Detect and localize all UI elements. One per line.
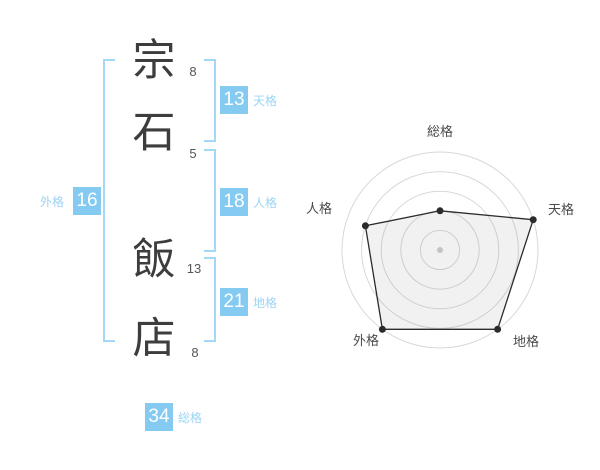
gaikaku-value-badge: 16 <box>73 187 101 215</box>
radar-axis-label-0: 総格 <box>427 124 453 139</box>
stroke-count-3: 13 <box>184 261 204 276</box>
chikaku-bracket <box>204 257 216 342</box>
name-char-1: 宗 <box>132 39 176 83</box>
name-char-2: 石 <box>132 111 176 155</box>
radar-data-polygon <box>365 211 533 329</box>
soukaku-value-badge: 34 <box>145 403 173 431</box>
tenkaku-bracket <box>204 59 216 142</box>
radar-vertex-1 <box>530 216 537 223</box>
radar-vertex-0 <box>437 207 444 214</box>
tenkaku-value-badge: 13 <box>220 86 248 114</box>
radar-axis-label-2: 地格 <box>513 334 539 349</box>
radar-center-dot <box>437 247 443 253</box>
jinkaku-value-badge: 18 <box>220 188 248 216</box>
gaikaku-bracket <box>103 59 115 342</box>
chikaku-label: 地格 <box>253 296 277 310</box>
gaikaku-label: 外格 <box>30 195 64 209</box>
radar-axis-label-1: 天格 <box>548 202 574 217</box>
soukaku-label: 総格 <box>178 411 202 425</box>
radar-vertex-2 <box>494 326 501 333</box>
fortune-radar-chart: 総格天格地格外格人格 <box>290 100 590 400</box>
tenkaku-label: 天格 <box>253 94 277 108</box>
stroke-count-2: 5 <box>183 146 203 161</box>
jinkaku-label: 人格 <box>253 196 277 210</box>
name-char-4: 店 <box>132 317 176 361</box>
name-fortune-result: 宗 石 飯 店 8 5 13 8 13 天格 18 人格 21 地格 外格 16… <box>0 0 600 470</box>
stroke-count-4: 8 <box>185 345 205 360</box>
radar-vertex-4 <box>362 222 369 229</box>
radar-axis-label-3: 外格 <box>353 333 379 348</box>
stroke-count-1: 8 <box>183 64 203 79</box>
radar-axis-label-4: 人格 <box>306 201 332 216</box>
jinkaku-bracket <box>204 149 216 252</box>
name-char-3: 飯 <box>132 238 176 282</box>
radar-vertex-3 <box>379 326 386 333</box>
chikaku-value-badge: 21 <box>220 288 248 316</box>
